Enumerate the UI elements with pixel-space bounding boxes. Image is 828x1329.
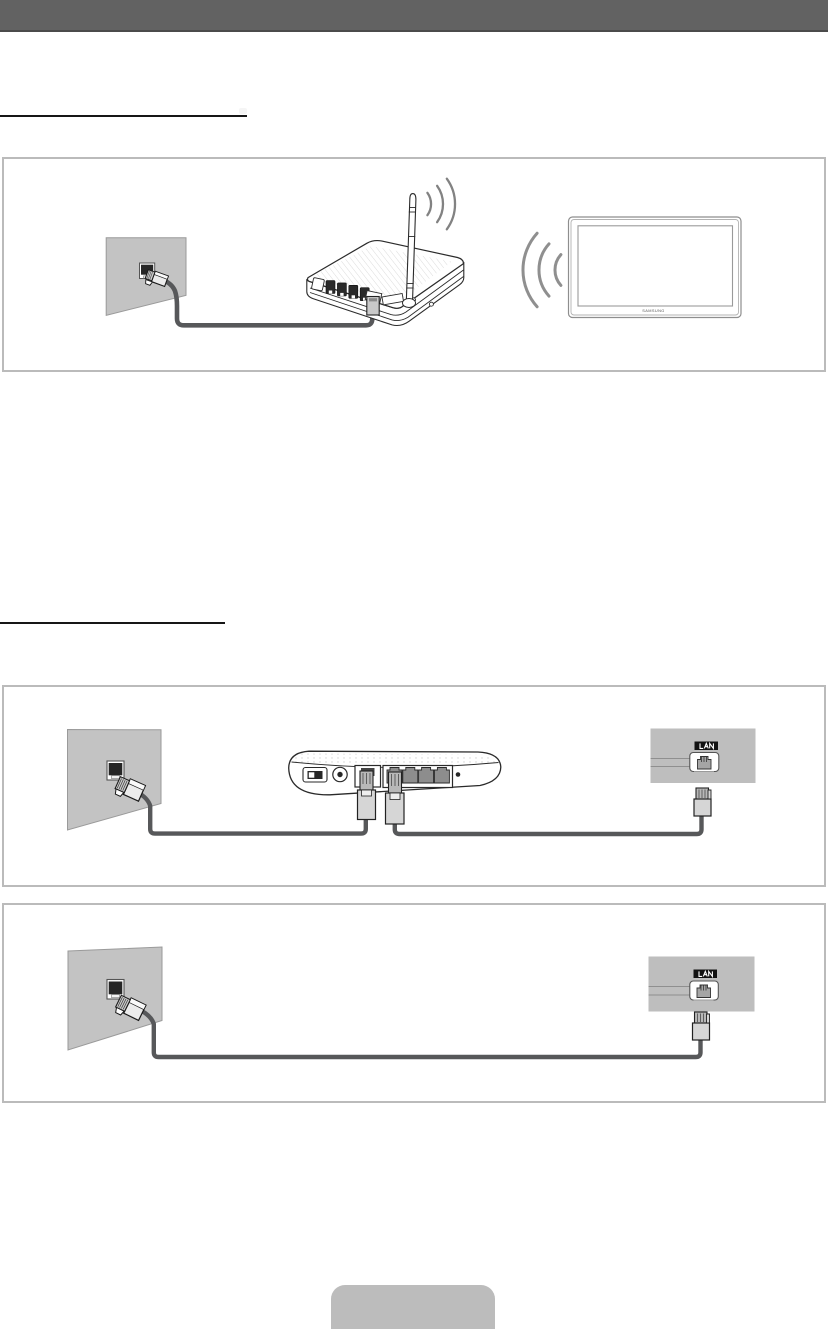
svg-text:SAMSUNG: SAMSUNG <box>642 308 664 313</box>
